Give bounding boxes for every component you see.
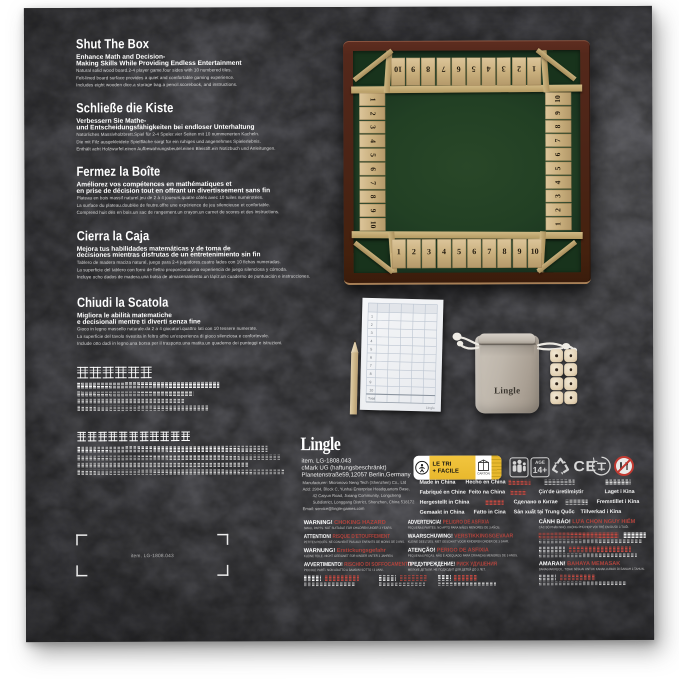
svg-text:Total: Total bbox=[368, 396, 376, 400]
svg-text:3: 3 bbox=[371, 331, 373, 335]
svg-text:Lingle: Lingle bbox=[426, 406, 435, 410]
svg-text:6: 6 bbox=[370, 356, 372, 360]
svg-text:1: 1 bbox=[371, 315, 373, 319]
svg-text:5: 5 bbox=[370, 347, 372, 351]
svg-text:10: 10 bbox=[369, 388, 373, 392]
svg-text:4: 4 bbox=[370, 339, 372, 343]
svg-text:8: 8 bbox=[370, 372, 372, 376]
svg-text:7: 7 bbox=[370, 364, 372, 368]
svg-text:2: 2 bbox=[371, 323, 373, 327]
svg-text:9: 9 bbox=[369, 380, 371, 384]
